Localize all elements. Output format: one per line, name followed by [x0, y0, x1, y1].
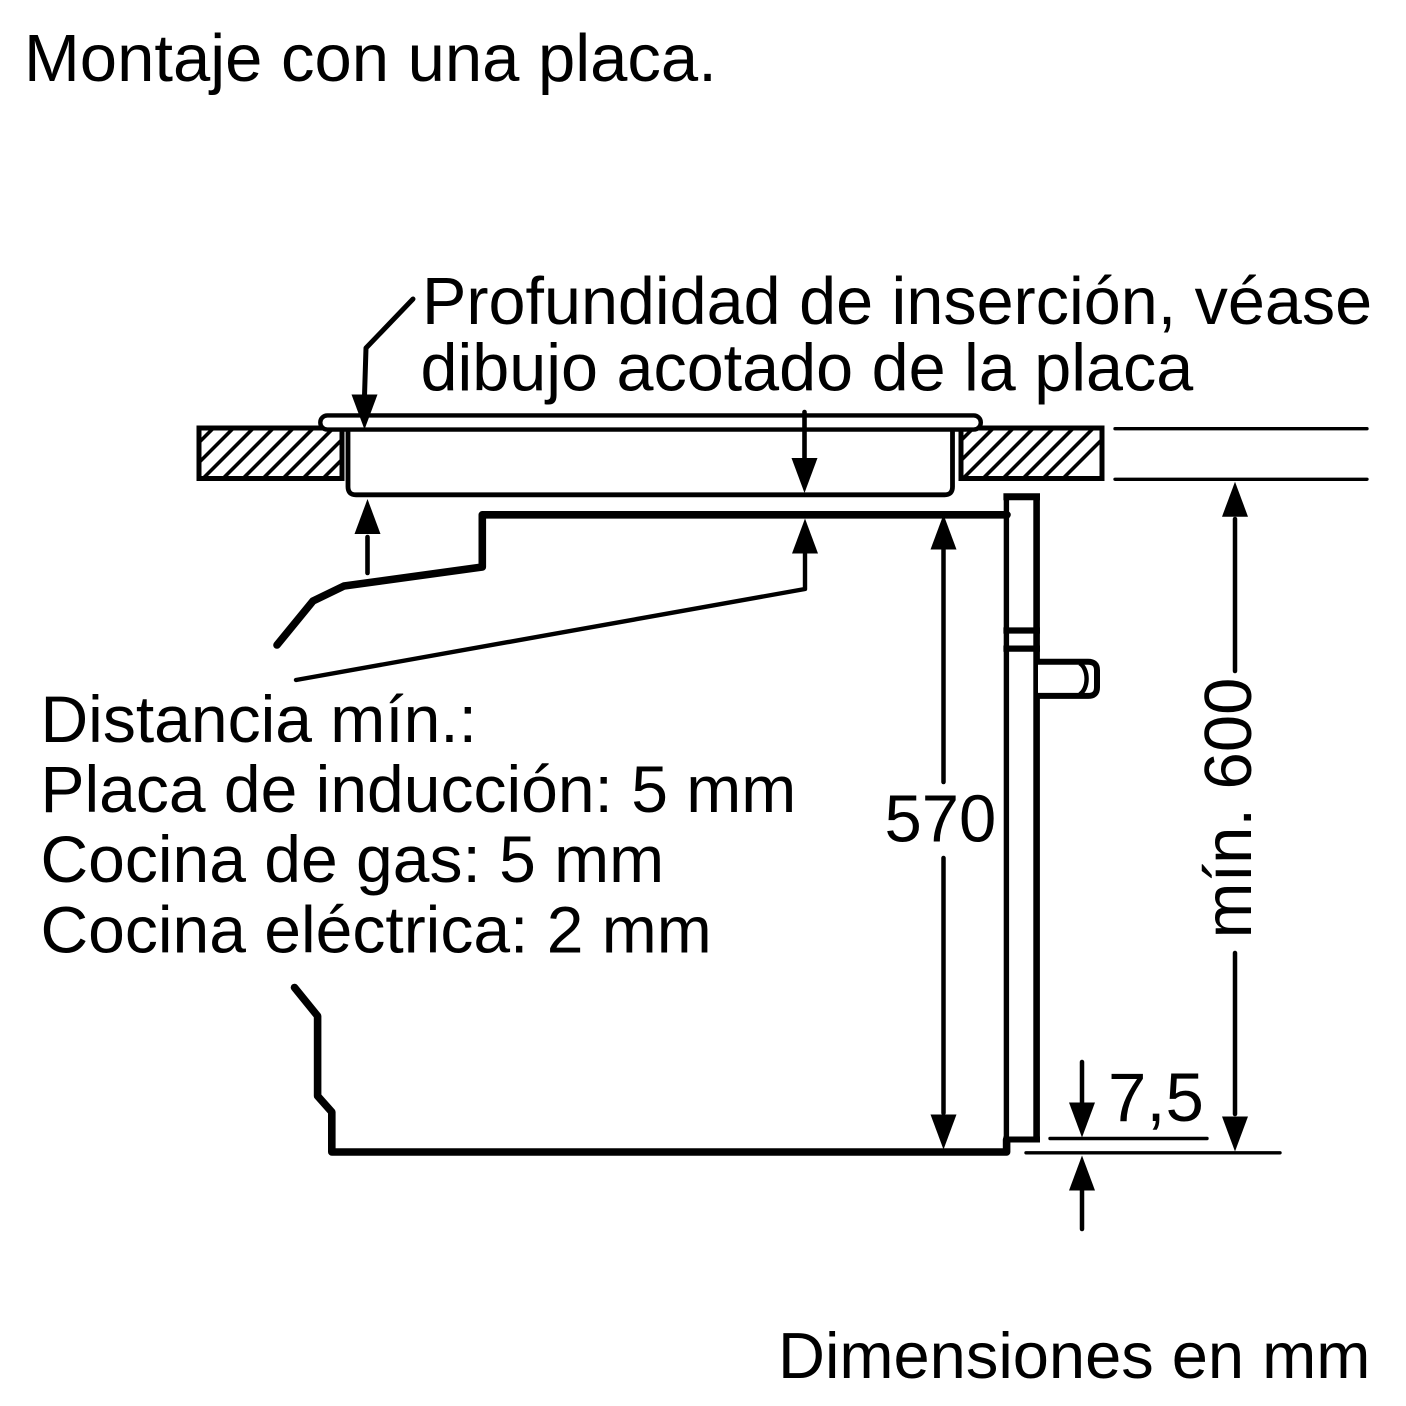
- svg-text:Montaje con una placa.: Montaje con una placa.: [24, 21, 717, 96]
- svg-text:mín. 600: mín. 600: [1191, 678, 1266, 939]
- svg-text:Placa de inducción: 5 mm: Placa de inducción: 5 mm: [41, 752, 797, 826]
- svg-text:7,5: 7,5: [1108, 1059, 1204, 1136]
- svg-text:Distancia mín.:: Distancia mín.:: [41, 682, 477, 756]
- svg-text:Dimensiones en mm: Dimensiones en mm: [778, 1319, 1370, 1392]
- svg-text:Cocina eléctrica: 2 mm: Cocina eléctrica: 2 mm: [41, 893, 712, 967]
- svg-text:Cocina de gas: 5 mm: Cocina de gas: 5 mm: [41, 822, 665, 896]
- svg-text:dibujo acotado de la placa: dibujo acotado de la placa: [421, 332, 1194, 406]
- svg-text:570: 570: [885, 782, 997, 857]
- svg-text:Profundidad de inserción, véas: Profundidad de inserción, véase: [422, 265, 1372, 339]
